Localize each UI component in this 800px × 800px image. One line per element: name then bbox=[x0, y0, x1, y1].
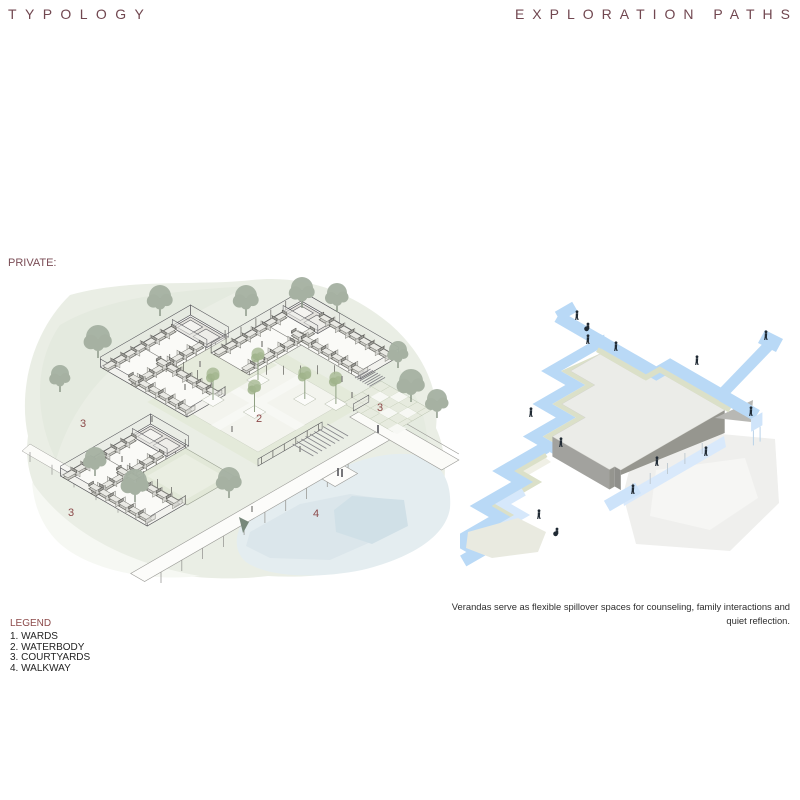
svg-text:2: 2 bbox=[256, 413, 262, 425]
svg-text:3: 3 bbox=[377, 402, 383, 414]
svg-text:4: 4 bbox=[313, 508, 319, 520]
svg-text:3: 3 bbox=[80, 418, 86, 430]
svg-text:3: 3 bbox=[68, 507, 74, 519]
